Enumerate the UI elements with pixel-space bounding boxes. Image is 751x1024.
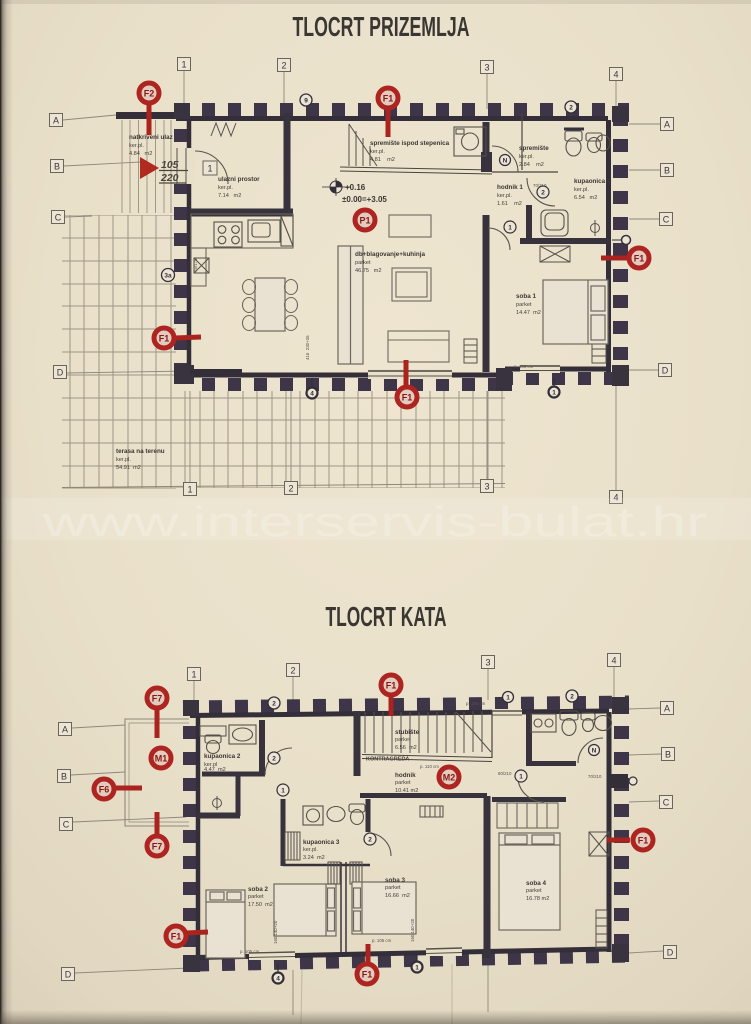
svg-text:7.14 m2: 7.14 m2 <box>218 193 241 199</box>
svg-text:parket: parket <box>385 885 401 891</box>
svg-text:6.54 m2: 6.54 m2 <box>574 195 597 201</box>
svg-text:2: 2 <box>272 701 276 708</box>
svg-text:soba 2: soba 2 <box>248 886 268 893</box>
svg-text:ker.pl.: ker.pl. <box>303 847 318 853</box>
svg-text:A: A <box>62 725 68 735</box>
svg-text:F1: F1 <box>362 969 373 979</box>
svg-text:4: 4 <box>276 976 280 983</box>
svg-text:B: B <box>665 750 671 760</box>
svg-text:16.66 m2: 16.66 m2 <box>385 893 410 899</box>
svg-text:2: 2 <box>541 190 545 197</box>
svg-text:spremište: spremište <box>519 145 549 152</box>
svg-text:4.84 m2: 4.84 m2 <box>129 151 152 157</box>
svg-text:3a: 3a <box>164 273 172 280</box>
svg-text:F7: F7 <box>152 841 163 851</box>
svg-text:p. 105 cm: p. 105 cm <box>240 949 260 954</box>
svg-text:70/210: 70/210 <box>588 774 602 779</box>
svg-text:B: B <box>54 162 60 172</box>
svg-text:D: D <box>667 948 674 958</box>
svg-text:1: 1 <box>519 774 523 781</box>
svg-text:P1: P1 <box>359 215 370 225</box>
svg-text:80/210: 80/210 <box>498 771 512 776</box>
svg-text:parket: parket <box>395 737 411 743</box>
svg-text:F7: F7 <box>152 693 163 703</box>
svg-text:3: 3 <box>485 658 490 668</box>
svg-text:+0.16: +0.16 <box>345 183 366 192</box>
svg-text:1: 1 <box>508 225 512 232</box>
svg-text:1.61 m2: 1.61 m2 <box>497 201 522 207</box>
svg-text:1: 1 <box>415 965 419 972</box>
svg-text:hodnik 1: hodnik 1 <box>497 184 523 191</box>
svg-text:54.91 m2: 54.91 m2 <box>116 465 141 471</box>
svg-text:D: D <box>662 366 669 376</box>
svg-text:9: 9 <box>304 98 308 105</box>
svg-text:ker.pl.: ker.pl. <box>218 185 233 191</box>
svg-text:17.50 m2: 17.50 m2 <box>248 902 273 908</box>
svg-text:A: A <box>53 116 59 126</box>
svg-text:3: 3 <box>484 482 489 492</box>
svg-text:±0.00=+3.05: ±0.00=+3.05 <box>342 195 387 204</box>
svg-text:1: 1 <box>552 390 556 397</box>
svg-text:kupaonica 2: kupaonica 2 <box>204 753 241 760</box>
svg-text:2: 2 <box>368 837 372 844</box>
svg-text:A: A <box>664 120 670 130</box>
svg-text:F1: F1 <box>159 333 170 343</box>
svg-text:hodnik: hodnik <box>395 772 416 779</box>
svg-text:1: 1 <box>506 695 510 702</box>
svg-text:220: 220 <box>160 172 179 184</box>
svg-text:parket: parket <box>355 260 371 266</box>
svg-text:416 230+35: 416 230+35 <box>305 335 310 360</box>
svg-text:KONTRAGREDA: KONTRAGREDA <box>366 757 409 763</box>
svg-text:B: B <box>61 772 67 782</box>
svg-text:F1: F1 <box>638 835 649 845</box>
svg-text:ker.pl.: ker.pl. <box>519 154 534 160</box>
svg-text:A: A <box>664 704 670 714</box>
svg-text:ker.pl.: ker.pl. <box>370 149 385 155</box>
svg-text:ker.pl.: ker.pl. <box>497 193 512 199</box>
svg-text:1: 1 <box>281 788 285 795</box>
svg-text:F1: F1 <box>634 253 645 263</box>
svg-text:p. 185 cm: p. 185 cm <box>466 701 486 706</box>
svg-text:natkriveni ulaz: natkriveni ulaz <box>129 134 173 141</box>
svg-text:F1: F1 <box>171 931 182 941</box>
svg-text:1: 1 <box>187 485 192 495</box>
svg-text:soba 3: soba 3 <box>385 877 405 884</box>
svg-text:M1: M1 <box>155 753 168 763</box>
svg-text:F1: F1 <box>383 93 394 103</box>
svg-text:2: 2 <box>272 756 276 763</box>
svg-text:105: 105 <box>161 159 179 171</box>
svg-text:terasa na terenu: terasa na terenu <box>116 448 165 455</box>
svg-text:2: 2 <box>569 105 573 112</box>
svg-text:parket: parket <box>526 888 542 894</box>
svg-text:spremište ispod stepenica: spremište ispod stepenica <box>370 140 450 147</box>
svg-text:160/140+20: 160/140+20 <box>273 920 278 944</box>
svg-text:4: 4 <box>310 391 314 398</box>
svg-text:2.84 m2: 2.84 m2 <box>519 162 544 168</box>
svg-text:4.81 m2: 4.81 m2 <box>370 157 395 163</box>
svg-text:ker.pl.: ker.pl. <box>574 187 589 193</box>
svg-text:2: 2 <box>281 61 286 71</box>
svg-text:C: C <box>55 213 62 223</box>
svg-text:N: N <box>503 158 508 165</box>
svg-text:ker.pl.: ker.pl. <box>116 457 131 463</box>
svg-text:C: C <box>663 798 670 808</box>
svg-text:16.78 m2: 16.78 m2 <box>526 896 549 902</box>
svg-text:75/175: 75/175 <box>193 258 198 272</box>
svg-text:M2: M2 <box>443 772 456 782</box>
svg-text:1: 1 <box>207 164 212 174</box>
svg-text:2: 2 <box>290 666 295 676</box>
svg-text:C: C <box>63 820 70 830</box>
svg-text:p. 105 cm: p. 105 cm <box>514 364 534 369</box>
svg-text:ker.pl.: ker.pl. <box>129 143 144 149</box>
svg-text:2: 2 <box>570 694 574 701</box>
svg-text:1: 1 <box>191 670 196 680</box>
svg-text:4.47 m2: 4.47 m2 <box>204 767 226 773</box>
svg-text:4: 4 <box>613 70 618 80</box>
svg-text:3: 3 <box>484 63 489 73</box>
svg-text:F1: F1 <box>402 392 413 402</box>
svg-text:ulazni prostor: ulazni prostor <box>218 176 260 183</box>
svg-text:soba 4: soba 4 <box>526 880 546 887</box>
svg-text:1: 1 <box>181 60 186 70</box>
svg-text:F6: F6 <box>99 784 110 794</box>
svg-text:14.47 m2: 14.47 m2 <box>516 310 541 316</box>
svg-text:parket: parket <box>395 780 411 786</box>
svg-text:2: 2 <box>288 484 293 494</box>
svg-text:TLOCRT KATA: TLOCRT KATA <box>326 601 447 632</box>
svg-text:stubište: stubište <box>395 729 420 736</box>
svg-text:D: D <box>57 368 64 378</box>
svg-text:www.interservis-bulat.hr: www.interservis-bulat.hr <box>42 498 707 545</box>
svg-text:4: 4 <box>611 656 616 666</box>
svg-text:46.75 m2: 46.75 m2 <box>355 268 381 274</box>
svg-text:D: D <box>65 970 72 980</box>
svg-text:kupaonica 3: kupaonica 3 <box>303 839 340 846</box>
svg-text:p. 110 cm: p. 110 cm <box>420 764 439 769</box>
svg-text:10.41 m2: 10.41 m2 <box>395 788 418 794</box>
svg-text:160/140+20: 160/140+20 <box>410 918 415 942</box>
svg-text:3.24 m2: 3.24 m2 <box>303 855 325 861</box>
svg-text:kupaonica 1: kupaonica 1 <box>574 178 611 185</box>
svg-text:B: B <box>664 166 670 176</box>
svg-text:parket: parket <box>248 894 264 900</box>
svg-text:TLOCRT PRIZEMLJA: TLOCRT PRIZEMLJA <box>293 11 470 42</box>
svg-text:parket: parket <box>516 302 532 308</box>
svg-text:6.56 m2: 6.56 m2 <box>395 745 417 751</box>
svg-text:C: C <box>663 215 670 225</box>
svg-text:N: N <box>592 748 597 755</box>
svg-text:F2: F2 <box>144 88 155 98</box>
svg-text:p. 105 cm: p. 105 cm <box>372 938 392 943</box>
svg-text:soba 1: soba 1 <box>516 293 536 300</box>
svg-text:F1: F1 <box>386 680 397 690</box>
svg-text:db+blagovanje+kuhinja: db+blagovanje+kuhinja <box>355 251 425 258</box>
